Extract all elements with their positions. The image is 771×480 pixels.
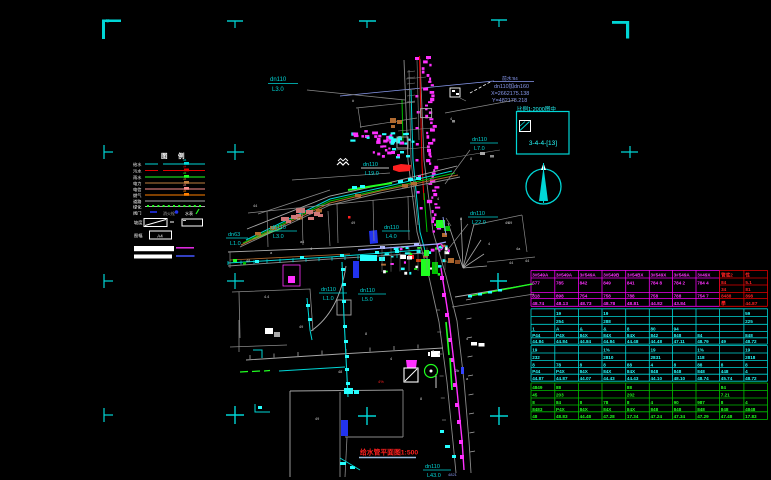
svg-text:3#549A: 3#549A [556, 273, 573, 278]
svg-text:44.48: 44.48 [580, 414, 592, 419]
svg-text:4821: 4821 [448, 472, 458, 477]
svg-text:a: a [466, 377, 469, 381]
svg-text:1: 1 [532, 326, 535, 331]
svg-text:4: 4 [651, 362, 654, 367]
svg-text:雨水: 雨水 [133, 174, 142, 181]
svg-text:d4: d4 [183, 158, 187, 162]
svg-text:84X: 84X [603, 407, 612, 412]
svg-text:47.34: 47.34 [674, 414, 686, 419]
svg-text:8488: 8488 [721, 294, 732, 299]
svg-text:图: 图 [161, 151, 168, 160]
svg-text:P44: P44 [532, 333, 541, 338]
svg-text:8: 8 [627, 326, 630, 331]
svg-text:47.28: 47.28 [603, 414, 615, 419]
svg-text:19: 19 [651, 348, 657, 353]
svg-text:202: 202 [627, 393, 635, 398]
svg-text:學: 學 [721, 300, 726, 307]
svg-text:8: 8 [721, 362, 724, 367]
svg-text:阀门: 阀门 [133, 210, 141, 217]
svg-text:给水: 给水 [133, 161, 142, 168]
svg-text:232: 232 [532, 355, 540, 360]
svg-text:燃气: 燃气 [133, 192, 142, 199]
svg-text:84: 84 [721, 385, 727, 390]
svg-text:78: 78 [556, 362, 562, 367]
svg-text:47.29: 47.29 [697, 414, 709, 419]
svg-text:118: 118 [697, 355, 705, 360]
svg-text:45: 45 [532, 393, 538, 398]
svg-text:8: 8 [580, 400, 583, 405]
svg-text:44.84: 44.84 [580, 339, 592, 344]
svg-text:848: 848 [651, 369, 659, 374]
svg-text:841: 841 [627, 281, 635, 286]
svg-text:44.84: 44.84 [532, 339, 544, 344]
svg-text:48.13: 48.13 [556, 301, 568, 307]
svg-text:a: a [270, 251, 273, 255]
svg-text:2b: 2b [455, 369, 459, 373]
svg-text:3-4-4-[13]: 3-4-4-[13] [529, 140, 557, 147]
svg-text:dn110: dn110 [472, 137, 487, 143]
svg-text:&: & [580, 326, 584, 331]
svg-text:84X: 84X [603, 333, 612, 338]
svg-text:dn110加dn160: dn110加dn160 [494, 82, 529, 90]
svg-text:#: # [352, 99, 355, 103]
svg-text:848: 848 [697, 369, 705, 374]
svg-text:19: 19 [745, 348, 751, 353]
svg-text:48.78: 48.78 [603, 301, 615, 307]
svg-text:P4X: P4X [556, 407, 566, 412]
svg-text:4: 4 [437, 197, 439, 201]
svg-text:8: 8 [470, 157, 472, 161]
svg-text:8: 8 [580, 362, 583, 367]
svg-text:P4X: P4X [556, 369, 566, 374]
svg-text:19: 19 [603, 311, 609, 316]
svg-text:2810: 2810 [603, 355, 614, 360]
svg-text:48.74: 48.74 [697, 376, 709, 381]
svg-text:&: & [603, 326, 607, 331]
svg-text:84X: 84X [580, 333, 589, 338]
svg-text:P44: P44 [532, 369, 541, 374]
svg-text:dn110: dn110 [470, 211, 485, 217]
svg-text:X=2662175.138: X=2662175.138 [491, 91, 529, 97]
svg-text:8: 8 [365, 332, 367, 336]
svg-text:绿化: 绿化 [133, 204, 142, 211]
svg-text:47.11: 47.11 [674, 339, 686, 344]
svg-text:L19.0: L19.0 [365, 171, 379, 177]
svg-text:dn110: dn110 [271, 225, 286, 231]
svg-text:848: 848 [697, 407, 705, 412]
svg-text:44.10: 44.10 [651, 376, 663, 381]
svg-text:47.24: 47.24 [651, 414, 663, 419]
svg-text:48.10: 48.10 [674, 376, 686, 381]
svg-text:4: 4 [450, 117, 452, 121]
svg-text:dn110: dn110 [270, 77, 287, 83]
svg-text:L3.0: L3.0 [272, 87, 284, 93]
svg-text:84X: 84X [580, 407, 589, 412]
svg-text:81: 81 [745, 287, 751, 292]
svg-text:dn110: dn110 [363, 162, 378, 168]
svg-text:758: 758 [603, 294, 611, 299]
svg-text:8: 8 [532, 400, 535, 405]
svg-text:288: 288 [603, 319, 611, 324]
svg-text:44.43: 44.43 [603, 376, 615, 381]
svg-text:59: 59 [745, 311, 751, 316]
svg-text:d4: d4 [183, 177, 187, 181]
svg-text:849: 849 [603, 281, 611, 286]
svg-text:785: 785 [556, 281, 564, 286]
svg-text:浙Ⅵ4.1: 浙Ⅵ4.1 [106, 18, 118, 23]
svg-text:84X: 84X [627, 333, 636, 338]
svg-text:污水: 污水 [133, 168, 142, 175]
svg-text:49: 49 [351, 221, 355, 225]
svg-text:19: 19 [556, 311, 562, 316]
svg-text:d4: d4 [183, 189, 187, 193]
svg-text:d4: d4 [183, 171, 187, 175]
svg-text:dn110: dn110 [384, 225, 399, 231]
svg-text:坡度: 坡度 [134, 219, 143, 226]
svg-text:电力: 电力 [133, 180, 141, 187]
svg-text:45.74: 45.74 [721, 376, 733, 381]
svg-text:dn63: dn63 [228, 232, 240, 238]
svg-text:4a: 4a [516, 247, 521, 251]
svg-text:94: 94 [674, 326, 680, 331]
svg-text:8483: 8483 [532, 407, 543, 412]
svg-text:4848: 4848 [745, 407, 756, 412]
svg-text:3#54BX: 3#54BX [627, 273, 645, 278]
svg-text:49: 49 [721, 339, 727, 344]
svg-text:44.07: 44.07 [580, 376, 592, 381]
svg-text:48.81: 48.81 [627, 301, 639, 307]
svg-text:1%: 1% [697, 348, 704, 353]
svg-text:3#549X: 3#549X [651, 273, 668, 278]
svg-text:性: 性 [745, 272, 750, 279]
svg-text:44.87: 44.87 [745, 301, 757, 307]
svg-text:47.48: 47.48 [721, 414, 733, 419]
svg-text:88: 88 [556, 385, 562, 390]
svg-text:84X: 84X [603, 369, 612, 374]
svg-text:90: 90 [674, 400, 680, 405]
svg-text:4: 4 [651, 400, 654, 405]
svg-text:17.34: 17.34 [627, 414, 639, 419]
svg-text:48.79: 48.79 [697, 339, 709, 344]
svg-text:8: 8 [627, 400, 630, 405]
svg-text:842: 842 [651, 333, 659, 338]
svg-text:48.72: 48.72 [745, 339, 757, 344]
svg-text:3#49X: 3#49X [697, 273, 711, 278]
svg-text:84: 84 [721, 280, 727, 285]
svg-text:8: 8 [420, 397, 422, 401]
svg-text:3#549A: 3#549A [580, 273, 597, 278]
svg-text:44.87: 44.87 [556, 376, 568, 381]
svg-text:17.83: 17.83 [745, 414, 757, 419]
svg-text:754 7: 754 7 [697, 294, 709, 299]
svg-text:225: 225 [745, 319, 753, 324]
svg-text:L1.0: L1.0 [323, 296, 334, 302]
svg-text:88: 88 [697, 362, 703, 367]
svg-text:80: 80 [651, 326, 657, 331]
svg-text:L3.0: L3.0 [273, 234, 284, 240]
svg-text:49: 49 [508, 221, 512, 225]
svg-text:电信: 电信 [133, 186, 141, 193]
svg-text:3#549A: 3#549A [674, 273, 691, 278]
svg-text:8: 8 [460, 217, 462, 221]
svg-text:254: 254 [556, 319, 564, 324]
svg-text:4%: 4% [378, 379, 384, 384]
svg-text:3#549A: 3#549A [532, 273, 549, 278]
svg-text:44.48: 44.48 [651, 339, 663, 344]
svg-text:管底2: 管底2 [721, 272, 733, 279]
svg-text:L5.0: L5.0 [362, 297, 373, 303]
svg-text:88: 88 [627, 362, 633, 367]
svg-text:898: 898 [745, 294, 753, 299]
svg-text:848: 848 [651, 407, 659, 412]
svg-text:758: 758 [651, 294, 659, 299]
svg-text:A4: A4 [157, 234, 163, 239]
svg-text:788: 788 [627, 294, 635, 299]
svg-text:848: 848 [674, 369, 682, 374]
svg-text:P4X: P4X [556, 333, 566, 338]
svg-text:1%: 1% [603, 348, 610, 353]
svg-text:8: 8 [603, 362, 606, 367]
svg-text:dn110: dn110 [425, 464, 440, 470]
svg-text:848: 848 [721, 407, 729, 412]
svg-text:水表: 水表 [185, 210, 193, 216]
svg-text:8: 8 [721, 400, 724, 405]
svg-text:49: 49 [299, 325, 303, 329]
svg-text:8: 8 [674, 362, 677, 367]
svg-text:48.73: 48.73 [580, 301, 592, 307]
svg-text:dn110: dn110 [360, 288, 375, 294]
svg-text:784 2: 784 2 [674, 281, 686, 286]
svg-text:2818: 2818 [745, 355, 756, 360]
svg-text:48: 48 [338, 370, 342, 374]
svg-text:84: 84 [556, 400, 562, 405]
svg-text:84X: 84X [627, 369, 636, 374]
svg-text:784 4: 784 4 [697, 281, 709, 286]
svg-text:4: 4 [488, 242, 490, 246]
svg-text:788: 788 [674, 294, 682, 299]
svg-text:784 8: 784 8 [651, 281, 663, 286]
svg-text:d4: d4 [183, 165, 187, 169]
svg-text:44: 44 [253, 204, 257, 208]
svg-text:L7.0: L7.0 [474, 146, 485, 152]
svg-text:4: 4 [745, 369, 748, 374]
svg-text:842: 842 [580, 281, 588, 286]
svg-text:5.1: 5.1 [745, 280, 752, 285]
svg-text:7.21: 7.21 [721, 393, 730, 398]
svg-text:a4: a4 [300, 240, 304, 244]
svg-text:L22.0: L22.0 [472, 220, 486, 226]
svg-text:448: 448 [721, 369, 729, 374]
svg-text:987: 987 [697, 400, 705, 405]
svg-text:48.83: 48.83 [556, 414, 568, 419]
svg-text:48: 48 [246, 259, 250, 263]
svg-text:898: 898 [556, 294, 564, 299]
svg-text:48: 48 [532, 414, 538, 419]
svg-text:203: 203 [556, 393, 564, 398]
svg-text:A: A [556, 326, 560, 331]
svg-text:3#549B: 3#549B [603, 273, 620, 278]
svg-text:2831: 2831 [651, 355, 662, 360]
svg-text:L4.0: L4.0 [386, 234, 397, 240]
svg-text:J-12: J-12 [392, 138, 401, 143]
svg-text:78: 78 [603, 400, 609, 405]
svg-text:48.74: 48.74 [532, 301, 544, 307]
svg-text:图幅: 图幅 [134, 232, 142, 239]
svg-text:754: 754 [580, 294, 588, 299]
svg-text:4: 4 [745, 400, 748, 405]
svg-text:44.43: 44.43 [627, 376, 639, 381]
svg-text:84X: 84X [627, 407, 636, 412]
svg-text:8: 8 [745, 362, 748, 367]
svg-text:44.87: 44.87 [532, 376, 544, 381]
svg-text:84X: 84X [580, 369, 589, 374]
svg-text:L1.0: L1.0 [230, 241, 241, 247]
svg-text:8: 8 [532, 362, 535, 367]
svg-text:4: 4 [310, 247, 312, 251]
svg-text:L43.0: L43.0 [427, 473, 441, 479]
svg-text:4.4: 4.4 [264, 295, 269, 299]
svg-text:44.82: 44.82 [651, 301, 663, 307]
svg-text:848: 848 [674, 333, 682, 338]
svg-text:49: 49 [315, 417, 319, 421]
svg-text:4849: 4849 [532, 385, 543, 390]
svg-text:44.84: 44.84 [556, 339, 568, 344]
svg-text:44: 44 [509, 261, 513, 265]
svg-text:44.48: 44.48 [627, 339, 639, 344]
svg-text:848: 848 [745, 333, 753, 338]
svg-text:消火栓: 消火栓 [163, 210, 175, 216]
svg-text:dn110: dn110 [321, 287, 336, 293]
svg-text:34: 34 [721, 287, 727, 292]
svg-text:43.84: 43.84 [674, 301, 686, 307]
svg-text:d4: d4 [183, 183, 187, 187]
svg-text:4: 4 [390, 357, 392, 361]
svg-text:84: 84 [697, 333, 703, 338]
svg-text:给水管平面图1:500: 给水管平面图1:500 [360, 448, 418, 457]
svg-text:44: 44 [525, 259, 529, 263]
svg-text:44.84: 44.84 [603, 339, 615, 344]
svg-text:19: 19 [532, 348, 538, 353]
svg-text:577: 577 [532, 281, 540, 286]
svg-text:848: 848 [674, 407, 682, 412]
svg-text:48.72: 48.72 [745, 376, 757, 381]
svg-text:前水'84: 前水'84 [502, 75, 518, 82]
svg-text:88: 88 [627, 385, 633, 390]
